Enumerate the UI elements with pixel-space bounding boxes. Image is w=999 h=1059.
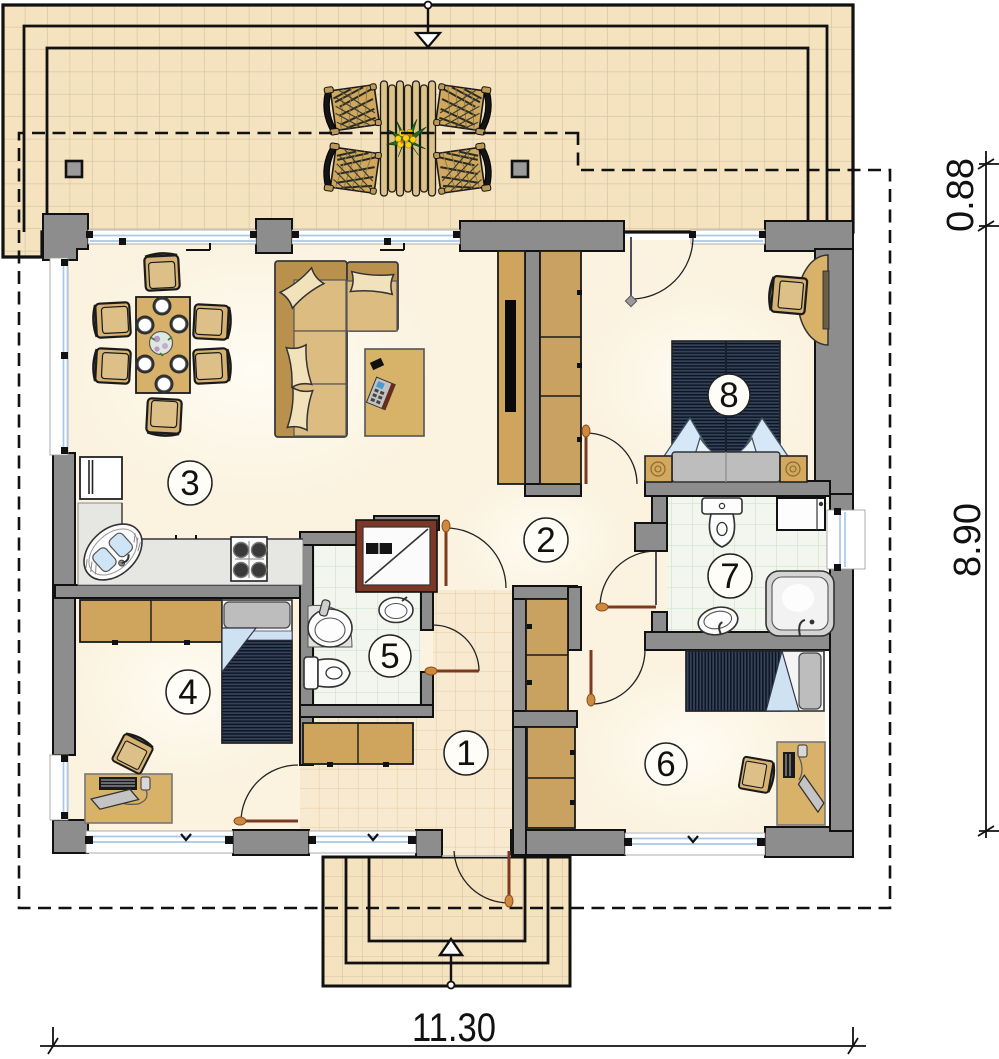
svg-text:7: 7 bbox=[720, 557, 739, 596]
svg-text:2: 2 bbox=[536, 521, 555, 560]
svg-text:0.88: 0.88 bbox=[940, 158, 982, 232]
svg-text:6: 6 bbox=[656, 745, 675, 784]
svg-text:11.30: 11.30 bbox=[412, 1006, 496, 1050]
svg-text:3: 3 bbox=[180, 464, 199, 503]
svg-text:5: 5 bbox=[380, 637, 399, 676]
svg-text:1: 1 bbox=[456, 734, 475, 773]
svg-text:8: 8 bbox=[719, 376, 738, 415]
svg-text:8.90: 8.90 bbox=[947, 503, 989, 577]
svg-text:4: 4 bbox=[178, 673, 197, 712]
